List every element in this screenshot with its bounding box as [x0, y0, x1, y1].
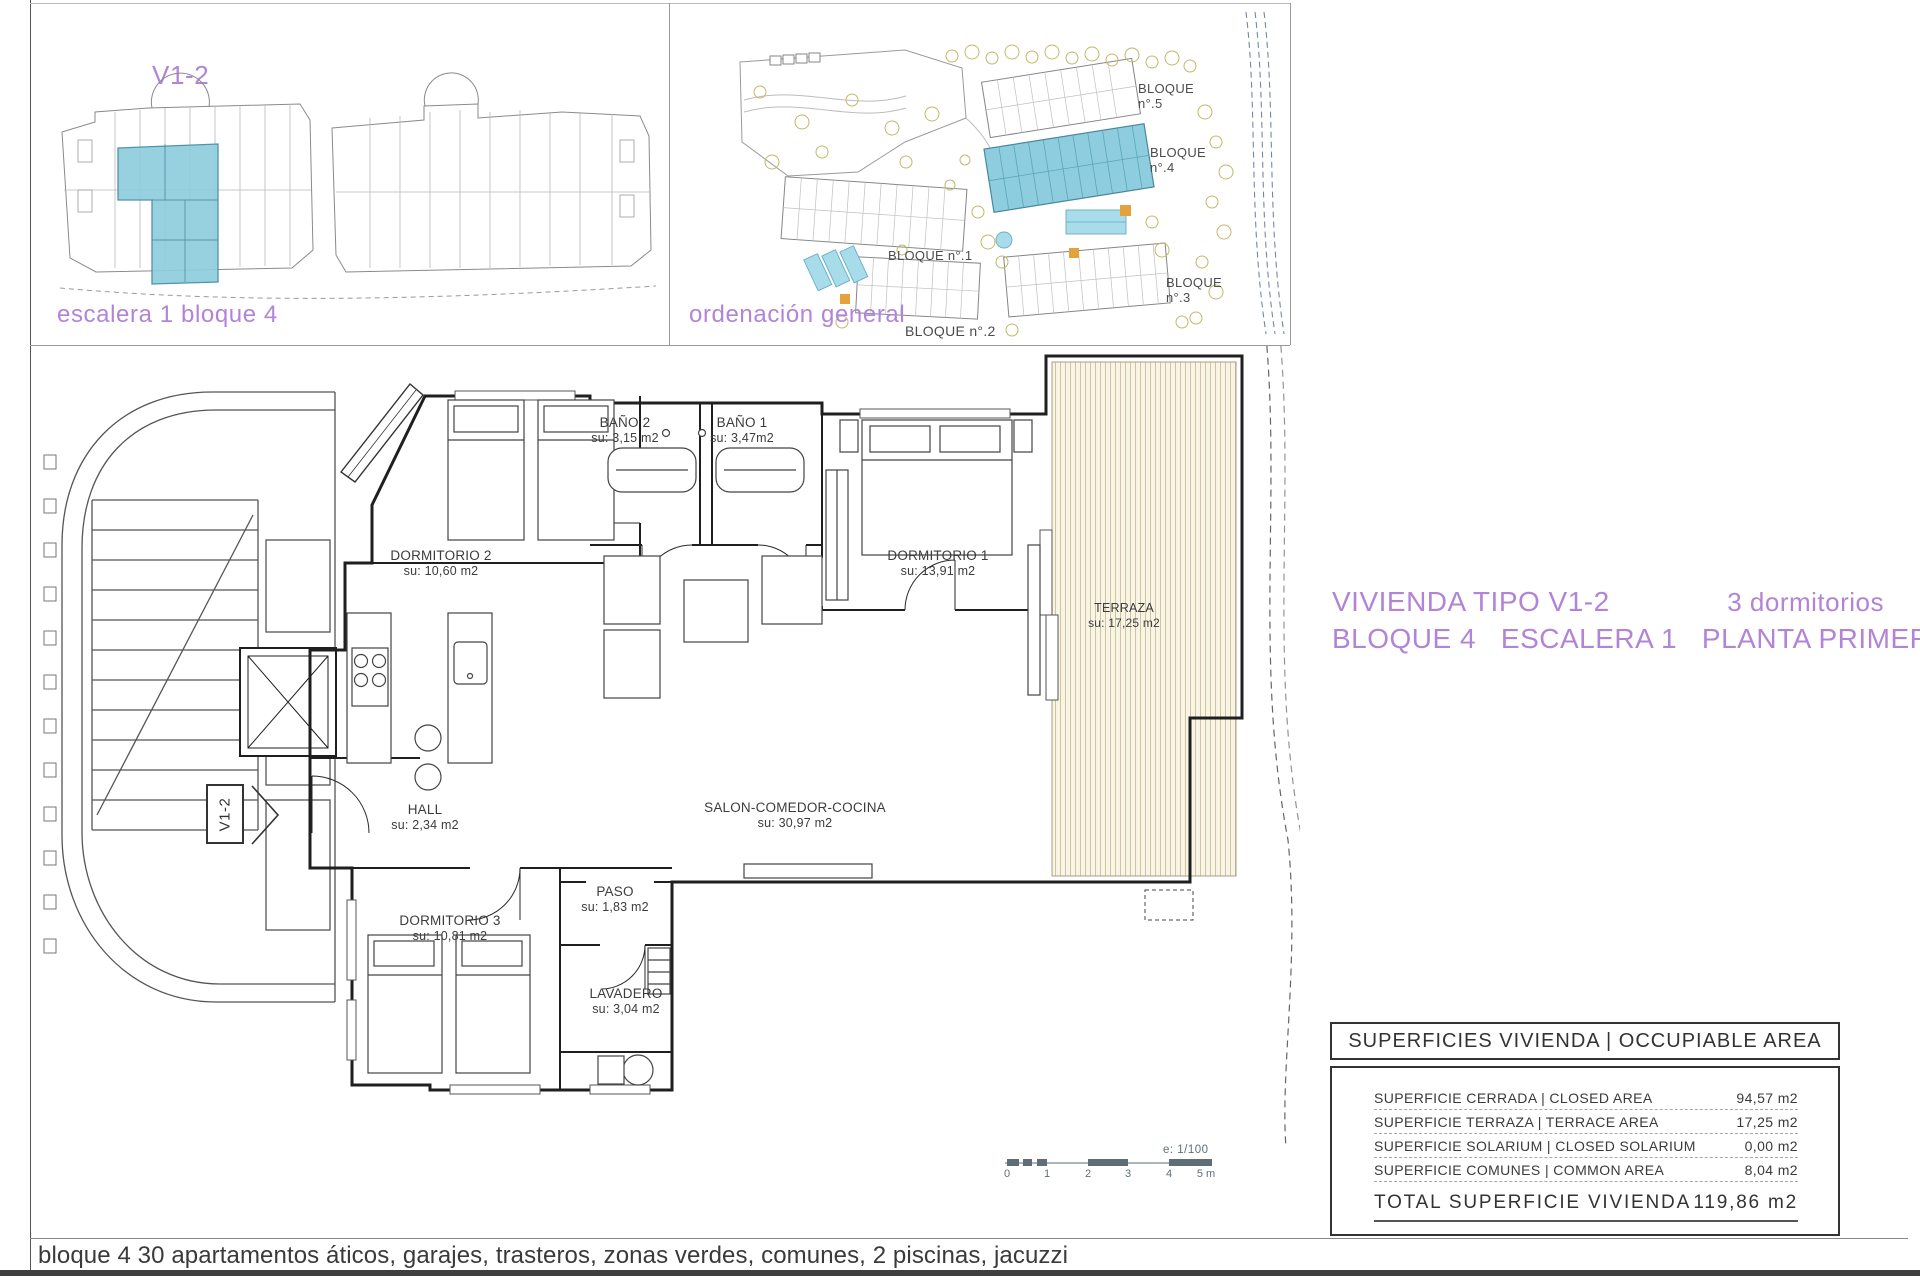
overview-caption: escalera 1 bloque 4	[57, 301, 278, 329]
site-caption: ordenación general	[689, 301, 905, 329]
overview-drawing	[30, 3, 669, 345]
table-row-solarium-area: SUPERFICIE SOLARIUM | CLOSED SOLARIUM0,0…	[1374, 1134, 1798, 1158]
scale-tick-5: 5 m	[1197, 1168, 1215, 1180]
sheet-footer-caption: bloque 4 30 apartamentos áticos, garajes…	[38, 1242, 1068, 1270]
unit-location: BLOQUE 4 ESCALERA 1 PLANTA PRIMERA	[1332, 623, 1884, 655]
scale-tick-4: 4	[1166, 1168, 1172, 1180]
room-label-lavadero: LAVADEROsu: 3,04 m2	[589, 986, 662, 1018]
bedrooms-count: 3 dormitorios	[1727, 587, 1884, 618]
plan-sheet: V1-2 escalera 1 bloque 4	[0, 0, 1920, 1280]
scale-tick-2: 2	[1085, 1168, 1091, 1180]
scale-tick-3: 3	[1125, 1168, 1131, 1180]
room-label-dormitorio2: DORMITORIO 2su: 10,60 m2	[390, 548, 491, 580]
panel-divider-2	[1290, 3, 1291, 345]
sheet-bottom-bar	[0, 1270, 1920, 1276]
highlighted-unit	[118, 144, 218, 284]
room-label-bano1: BAÑO 1su: 3,47m2	[710, 415, 774, 447]
room-label-dormitorio1: DORMITORIO 1su: 13,91 m2	[887, 548, 988, 580]
plan-unit-tag: V1-2	[206, 784, 244, 844]
site-label-bloque5: BLOQUE n°.5	[1138, 82, 1202, 111]
table-row-closed-area: SUPERFICIE CERRADA | CLOSED AREA94,57 m2	[1374, 1086, 1798, 1110]
site-label-bloque2: BLOQUE n°.2	[905, 324, 996, 340]
unit-heading: VIVIENDA TIPO V1-2 3 dormitorios BLOQUE …	[1332, 586, 1884, 655]
scale-bar	[1005, 1159, 1212, 1166]
areas-table-header: SUPERFICIES VIVIENDA | OCCUPIABLE AREA	[1330, 1022, 1840, 1060]
scale-tick-1: 1	[1044, 1168, 1050, 1180]
site-label-bloque3: BLOQUE n°.3	[1166, 276, 1230, 305]
site-highlighted-block	[984, 124, 1154, 213]
site-label-bloque1: BLOQUE n°.1	[888, 249, 972, 264]
site-label-bloque4: BLOQUE n°.4	[1150, 146, 1214, 175]
areas-table: SUPERFICIE CERRADA | CLOSED AREA94,57 m2…	[1330, 1066, 1840, 1236]
table-row-total: TOTAL SUPERFICIE VIVIENDA119,86 m2	[1374, 1192, 1798, 1222]
table-row-terrace-area: SUPERFICIE TERRAZA | TERRACE AREA17,25 m…	[1374, 1110, 1798, 1134]
table-row-common-area: SUPERFICIE COMUNES | COMMON AREA8,04 m2	[1374, 1158, 1798, 1182]
scale-ratio-label: e: 1/100	[1163, 1144, 1209, 1156]
scale-tick-0: 0	[1004, 1168, 1010, 1180]
room-label-terraza: TERRAZAsu: 17,25 m2	[1088, 601, 1160, 631]
room-label-dormitorio3: DORMITORIO 3su: 10,81 m2	[399, 913, 500, 945]
room-label-hall: HALLsu: 2,34 m2	[391, 802, 459, 834]
room-label-bano2: BAÑO 2su: 3,15 m2	[591, 415, 659, 447]
room-label-paso: PASOsu: 1,83 m2	[581, 884, 649, 916]
room-label-salon: SALON-COMEDOR-COCINAsu: 30,97 m2	[704, 800, 886, 832]
unit-type-title: VIVIENDA TIPO V1-2	[1332, 586, 1610, 618]
chevron-right-icon	[252, 786, 278, 844]
